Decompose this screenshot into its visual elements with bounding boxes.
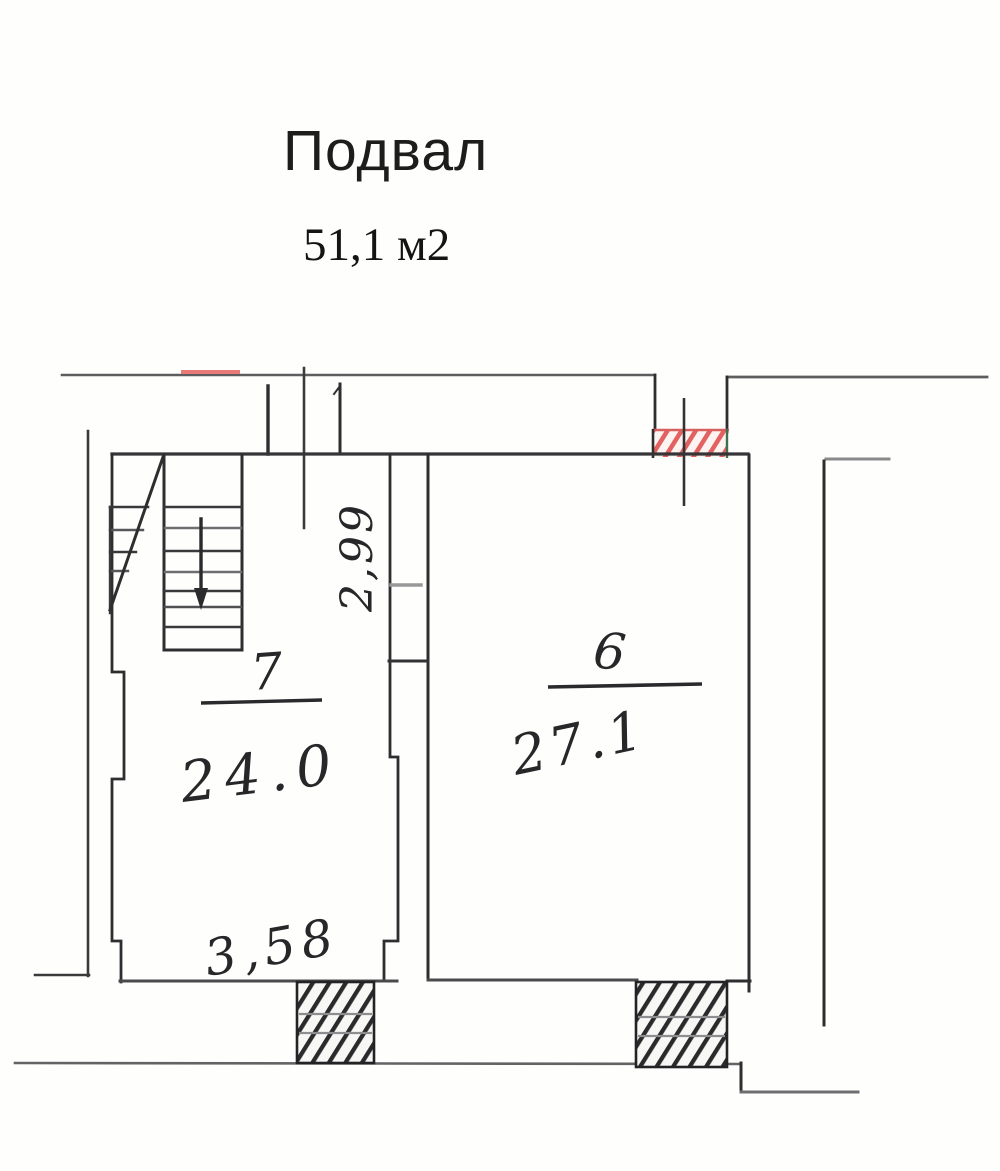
site-outline bbox=[15, 372, 987, 1092]
entrance-opening bbox=[268, 368, 340, 528]
room6-underline bbox=[548, 684, 702, 687]
bottom-hatch-blocks bbox=[297, 982, 727, 1067]
room7-number: 7 bbox=[249, 642, 285, 702]
room-labels: 7 24.0 6 27.1 3,58 2,99 bbox=[176, 502, 702, 988]
stair-break-line bbox=[110, 457, 163, 610]
room6-number: 6 bbox=[591, 621, 629, 682]
hatched-block-room6 bbox=[636, 982, 727, 1067]
room7-area: 24.0 bbox=[176, 732, 344, 816]
floorplan-drawing: 7 24.0 6 27.1 3,58 2,99 bbox=[0, 0, 1000, 1171]
room7-underline bbox=[201, 700, 322, 703]
hatched-block-room7 bbox=[297, 982, 374, 1063]
red-hatched-opening bbox=[652, 398, 729, 506]
room6-area: 27.1 bbox=[505, 698, 652, 788]
staircase bbox=[110, 455, 242, 650]
dimension-room7-depth: 2,99 bbox=[332, 502, 383, 613]
floorplan-page: Подвал 51,1 м2 bbox=[0, 0, 1000, 1171]
room-walls bbox=[112, 454, 750, 991]
dimension-room7-width: 3,58 bbox=[200, 907, 343, 988]
